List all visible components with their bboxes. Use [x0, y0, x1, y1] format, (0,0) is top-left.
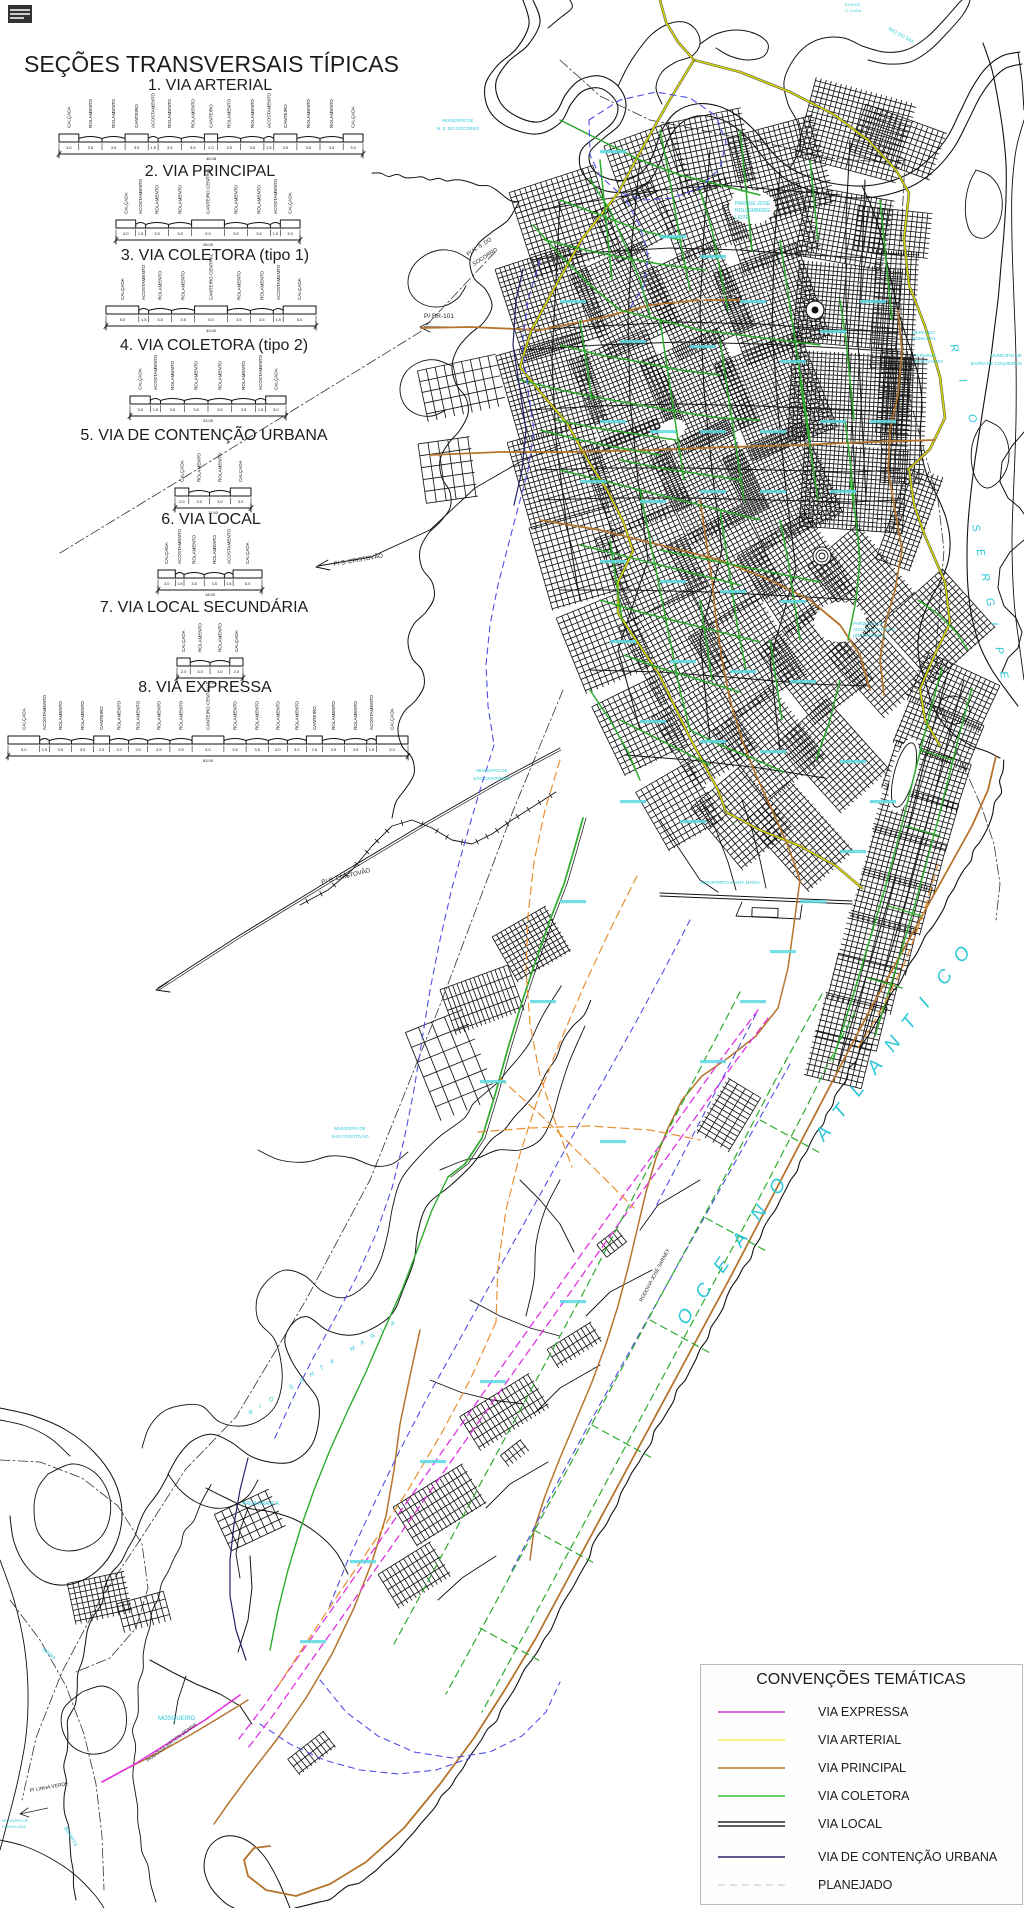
- svg-text:PARQUE GOV.: PARQUE GOV.: [853, 621, 884, 626]
- svg-text:P/ BR-101: P/ BR-101: [424, 313, 454, 320]
- svg-text:3. VIA COLETORA (tipo 1): 3. VIA COLETORA (tipo 1): [121, 247, 309, 264]
- svg-text:3.0: 3.0: [294, 747, 300, 752]
- svg-text:3.5: 3.5: [226, 145, 231, 150]
- svg-text:RODOVIÁRIO: RODOVIÁRIO: [914, 358, 943, 364]
- svg-text:MUNICÍPIO DE: MUNICÍPIO DE: [334, 1125, 365, 1131]
- svg-text:18.00: 18.00: [205, 592, 216, 597]
- svg-text:AREIA BRANCA: AREIA BRANCA: [242, 1501, 280, 1507]
- svg-text:CALÇADA: CALÇADA: [138, 367, 143, 390]
- svg-text:1. VIA ARTERIAL: 1. VIA ARTERIAL: [148, 77, 272, 94]
- svg-text:3.5: 3.5: [134, 145, 139, 150]
- svg-text:ROLAMENTO: ROLAMENTO: [212, 535, 217, 564]
- svg-text:3.0: 3.0: [197, 669, 203, 674]
- svg-text:3.5: 3.5: [283, 145, 288, 150]
- svg-text:ROLAMENTO: ROLAMENTO: [190, 99, 195, 128]
- svg-text:SANTA LUZIA: SANTA LUZIA: [2, 1825, 26, 1829]
- svg-text:3.5: 3.5: [331, 747, 336, 752]
- svg-text:5.0: 5.0: [120, 317, 126, 322]
- svg-text:CALÇADA: CALÇADA: [245, 541, 250, 564]
- svg-text:5.0: 5.0: [245, 581, 251, 586]
- svg-text:ROLAMENTO: ROLAMENTO: [178, 185, 183, 214]
- svg-text:3.5: 3.5: [250, 145, 255, 150]
- svg-text:5.0: 5.0: [297, 317, 303, 322]
- svg-text:3.5: 3.5: [190, 145, 195, 150]
- svg-text:VIA PRINCIPAL: VIA PRINCIPAL: [818, 1761, 906, 1775]
- svg-text:ROLAMENTO: ROLAMENTO: [194, 361, 199, 390]
- svg-text:ROLAMENTO: ROLAMENTO: [198, 623, 203, 652]
- svg-text:3.0: 3.0: [116, 747, 122, 752]
- svg-text:63.00: 63.00: [203, 758, 214, 763]
- svg-text:3.5: 3.5: [329, 145, 334, 150]
- svg-text:ROLAMENTO: ROLAMENTO: [255, 701, 260, 730]
- svg-text:3.5: 3.5: [167, 145, 172, 150]
- svg-text:SÃO CRISTÓVÃO: SÃO CRISTÓVÃO: [473, 775, 511, 781]
- svg-text:ROLAMENTO: ROLAMENTO: [250, 99, 255, 128]
- svg-text:ROLAMENTO: ROLAMENTO: [294, 701, 299, 730]
- svg-text:MUNICIPAL: MUNICIPAL: [912, 336, 937, 341]
- svg-text:CONVENÇÕES TEMÁTICAS: CONVENÇÕES TEMÁTICAS: [756, 1668, 966, 1688]
- svg-text:1.5: 1.5: [150, 145, 155, 150]
- svg-text:5.0: 5.0: [208, 317, 214, 322]
- svg-text:3.5: 3.5: [254, 747, 259, 752]
- svg-text:CALÇADA: CALÇADA: [238, 459, 243, 482]
- svg-text:1.5: 1.5: [226, 581, 231, 586]
- svg-text:CALÇADA: CALÇADA: [390, 707, 395, 730]
- svg-text:CALÇADA: CALÇADA: [234, 629, 239, 652]
- svg-text:ROLAMENTO: ROLAMENTO: [217, 361, 222, 390]
- svg-text:CANTEIRO: CANTEIRO: [312, 706, 317, 730]
- svg-text:ACOSTAMENTO: ACOSTAMENTO: [141, 265, 146, 300]
- svg-text:ROLAMENTO: ROLAMENTO: [58, 701, 63, 730]
- svg-text:ROLAMENTO: ROLAMENTO: [170, 361, 175, 390]
- svg-text:5.0: 5.0: [205, 231, 211, 236]
- svg-text:3.5: 3.5: [178, 747, 183, 752]
- svg-text:ACOSTAMENTO: ACOSTAMENTO: [369, 695, 374, 730]
- svg-text:3.0: 3.0: [196, 499, 202, 504]
- svg-text:5.0: 5.0: [21, 747, 27, 752]
- svg-text:3.0: 3.0: [217, 669, 223, 674]
- svg-text:CALÇADA: CALÇADA: [21, 707, 26, 730]
- svg-text:ROLAMENTO: ROLAMENTO: [88, 99, 93, 128]
- svg-text:3.5: 3.5: [212, 581, 217, 586]
- svg-text:CANTEIRO CENTRAL: CANTEIRO CENTRAL: [206, 167, 211, 214]
- svg-text:2.0: 2.0: [181, 669, 187, 674]
- svg-text:SEÇÕES TRANSVERSAIS TÍPICAS: SEÇÕES TRANSVERSAIS TÍPICAS: [24, 50, 399, 77]
- svg-text:ROLAMENTO: ROLAMENTO: [241, 361, 246, 390]
- svg-text:ROLAMENTO: ROLAMENTO: [167, 99, 172, 128]
- svg-text:PARQUE JOSÉ: PARQUE JOSÉ: [735, 200, 771, 207]
- svg-text:MUNICÍPIO DE: MUNICÍPIO DE: [2, 1819, 29, 1823]
- svg-text:5.0: 5.0: [389, 747, 395, 752]
- svg-text:CALÇADA: CALÇADA: [164, 541, 169, 564]
- svg-text:ROLAMENTO: ROLAMENTO: [306, 99, 311, 128]
- svg-text:ACOSTAMENTO: ACOSTAMENTO: [226, 529, 231, 564]
- svg-text:3.5: 3.5: [306, 145, 311, 150]
- svg-text:MOSQUEIRO: MOSQUEIRO: [158, 1716, 196, 1722]
- svg-text:46.08: 46.08: [206, 156, 217, 161]
- svg-text:3.5: 3.5: [156, 747, 161, 752]
- svg-text:3.5: 3.5: [177, 231, 182, 236]
- svg-text:VIA DE CONTENÇÃO URBANA: VIA DE CONTENÇÃO URBANA: [818, 1850, 998, 1864]
- svg-text:ACOSTAMENTO: ACOSTAMENTO: [138, 179, 143, 214]
- svg-text:CANTEIRO: CANTEIRO: [209, 104, 214, 128]
- svg-text:ROLAMENTO: ROLAMENTO: [217, 453, 222, 482]
- svg-text:23.00: 23.00: [203, 418, 214, 423]
- svg-text:MUNICÍPIO DE: MUNICÍPIO DE: [476, 767, 507, 773]
- svg-text:ROLAMENTO: ROLAMENTO: [179, 701, 184, 730]
- svg-text:3.5: 3.5: [80, 747, 85, 752]
- svg-text:3.5: 3.5: [154, 231, 159, 236]
- svg-text:3.5: 3.5: [180, 317, 185, 322]
- svg-text:MUNICÍPIO DE: MUNICÍPIO DE: [991, 352, 1022, 358]
- svg-text:33.00: 33.00: [206, 328, 217, 333]
- svg-text:SÃO CRISTÓVÃO: SÃO CRISTÓVÃO: [331, 1133, 369, 1139]
- svg-text:AUGUSTO FRANCO: AUGUSTO FRANCO: [853, 627, 896, 632]
- svg-text:LEITE: LEITE: [735, 215, 750, 221]
- svg-text:ROLAMENTO: ROLAMENTO: [353, 701, 358, 730]
- svg-text:3.5: 3.5: [233, 231, 238, 236]
- svg-text:ACOSTAMENTO: ACOSTAMENTO: [177, 529, 182, 564]
- svg-text:ROLAMENTO: ROLAMENTO: [259, 271, 264, 300]
- svg-text:MERCADO: MERCADO: [912, 330, 936, 335]
- svg-text:BARRA DE COQUEIROS: BARRA DE COQUEIROS: [970, 361, 1022, 366]
- svg-text:3.0: 3.0: [238, 499, 244, 504]
- svg-text:3.0: 3.0: [123, 231, 129, 236]
- svg-text:1.5: 1.5: [141, 317, 146, 322]
- svg-text:3.5: 3.5: [157, 317, 162, 322]
- svg-text:1.5: 1.5: [258, 407, 263, 412]
- svg-text:VIA COLETORA: VIA COLETORA: [818, 1789, 910, 1803]
- svg-text:ROLAMENTO: ROLAMENTO: [80, 701, 85, 730]
- svg-text:VIA EXPRESSA: VIA EXPRESSA: [818, 1705, 909, 1719]
- svg-text:3.5: 3.5: [58, 747, 63, 752]
- svg-text:CANTEIRO: CANTEIRO: [283, 104, 288, 128]
- svg-text:PLANEJADO: PLANEJADO: [818, 1878, 893, 1892]
- svg-text:4. VIA COLETORA (tipo 2): 4. VIA COLETORA (tipo 2): [120, 337, 308, 354]
- svg-text:CALÇADA: CALÇADA: [297, 277, 302, 300]
- svg-text:3.5: 3.5: [111, 145, 116, 150]
- svg-text:3.5: 3.5: [259, 317, 264, 322]
- svg-text:ROLAMENTO: ROLAMENTO: [136, 701, 141, 730]
- svg-text:ROLAMENTO: ROLAMENTO: [233, 185, 238, 214]
- svg-text:CALÇADA: CALÇADA: [179, 459, 184, 482]
- svg-text:3.0: 3.0: [66, 145, 72, 150]
- svg-text:CANTEIRO: CANTEIRO: [134, 104, 139, 128]
- svg-text:3.5: 3.5: [241, 407, 246, 412]
- svg-text:ROLAMENTO: ROLAMENTO: [256, 185, 261, 214]
- svg-text:2.5: 2.5: [99, 747, 104, 752]
- svg-text:ACOSTAMENTO: ACOSTAMENTO: [273, 179, 278, 214]
- svg-text:3.5: 3.5: [191, 581, 196, 586]
- svg-text:1.5: 1.5: [276, 317, 281, 322]
- svg-text:1.5: 1.5: [138, 231, 143, 236]
- svg-text:ROLAMENTO: ROLAMENTO: [158, 271, 163, 300]
- svg-text:ROLAMENTO: ROLAMENTO: [232, 701, 237, 730]
- svg-text:CANTEIRO CENTRAL: CANTEIRO CENTRAL: [209, 253, 214, 300]
- svg-text:2.0: 2.0: [234, 669, 240, 674]
- svg-text:CANTEIRO CENTRAL: CANTEIRO CENTRAL: [206, 683, 211, 730]
- svg-text:VIA ARTERIAL: VIA ARTERIAL: [818, 1733, 901, 1747]
- svg-text:1.5: 1.5: [153, 407, 158, 412]
- svg-text:ROLAMENTO: ROLAMENTO: [155, 185, 160, 214]
- svg-text:TERMINAL: TERMINAL: [914, 353, 937, 358]
- svg-text:3.5: 3.5: [193, 407, 198, 412]
- svg-text:3.5: 3.5: [217, 407, 222, 412]
- svg-text:ROLLEMBERG: ROLLEMBERG: [735, 208, 770, 214]
- svg-text:3.0: 3.0: [135, 747, 141, 752]
- svg-text:5.0: 5.0: [205, 747, 211, 752]
- svg-text:3.0: 3.0: [273, 407, 279, 412]
- svg-text:S. LUZIA: S. LUZIA: [845, 8, 862, 13]
- svg-text:ROLAMENTO: ROLAMENTO: [275, 701, 280, 730]
- svg-text:CALÇADA: CALÇADA: [120, 277, 125, 300]
- svg-text:CALÇADA: CALÇADA: [66, 105, 71, 128]
- svg-text:ILHA DE: ILHA DE: [845, 2, 861, 7]
- svg-text:5. VIA DE CONTENÇÃO URBANA: 5. VIA DE CONTENÇÃO URBANA: [80, 424, 327, 444]
- svg-text:AEROPORTO SANTA MARIA: AEROPORTO SANTA MARIA: [700, 880, 760, 885]
- svg-text:2.0: 2.0: [208, 145, 214, 150]
- svg-text:3.5: 3.5: [170, 407, 175, 412]
- svg-text:ROLAMENTO: ROLAMENTO: [192, 535, 197, 564]
- svg-text:3.5: 3.5: [88, 145, 93, 150]
- svg-text:ACOSTAMENTO: ACOSTAMENTO: [42, 695, 47, 730]
- svg-text:ROLAMENTO: ROLAMENTO: [227, 99, 232, 128]
- svg-text:3.0: 3.0: [350, 145, 356, 150]
- svg-text:ROLAMENTO: ROLAMENTO: [197, 453, 202, 482]
- svg-text:MUNICÍPIO DE: MUNICÍPIO DE: [442, 117, 473, 123]
- svg-text:1.5: 1.5: [369, 747, 374, 752]
- svg-text:ROLAMENTO: ROLAMENTO: [181, 271, 186, 300]
- svg-text:ROLAMENTO: ROLAMENTO: [331, 701, 336, 730]
- svg-text:(SEMENTEIRA): (SEMENTEIRA): [853, 633, 886, 638]
- svg-text:ACOSTAMENTO: ACOSTAMENTO: [276, 265, 281, 300]
- svg-text:3.0: 3.0: [287, 231, 293, 236]
- svg-text:3.0: 3.0: [164, 581, 170, 586]
- svg-text:6. VIA LOCAL: 6. VIA LOCAL: [161, 511, 261, 528]
- svg-text:ROLAMENTO: ROLAMENTO: [156, 701, 161, 730]
- svg-text:3.5: 3.5: [232, 747, 237, 752]
- svg-text:ROLAMENTO: ROLAMENTO: [111, 99, 116, 128]
- svg-text:2.0: 2.0: [179, 499, 185, 504]
- svg-text:CALÇADA: CALÇADA: [351, 105, 356, 128]
- svg-text:CALÇADA: CALÇADA: [123, 191, 128, 214]
- svg-text:2.5: 2.5: [312, 747, 317, 752]
- svg-text:ROLAMENTO: ROLAMENTO: [329, 99, 334, 128]
- svg-text:3.0: 3.0: [137, 407, 143, 412]
- svg-text:3.5: 3.5: [256, 231, 261, 236]
- svg-text:CALÇADA: CALÇADA: [273, 367, 278, 390]
- svg-text:ROLAMENTO: ROLAMENTO: [236, 271, 241, 300]
- svg-text:VIA LOCAL: VIA LOCAL: [818, 1817, 882, 1831]
- svg-text:3.5: 3.5: [353, 747, 358, 752]
- svg-text:1.5: 1.5: [273, 231, 278, 236]
- svg-text:CALÇADA: CALÇADA: [288, 191, 293, 214]
- svg-text:ACOSTAMENTO: ACOSTAMENTO: [258, 355, 263, 390]
- svg-text:1.5: 1.5: [42, 747, 47, 752]
- svg-text:3.0: 3.0: [275, 747, 281, 752]
- svg-text:3.5: 3.5: [236, 317, 241, 322]
- svg-text:CANTEIRO: CANTEIRO: [99, 706, 104, 730]
- svg-text:ACOSTAMENTO: ACOSTAMENTO: [151, 93, 156, 128]
- svg-text:N. S. DO SOCORRO: N. S. DO SOCORRO: [437, 126, 480, 131]
- svg-text:3.0: 3.0: [217, 499, 223, 504]
- svg-text:ACOSTAMENTO: ACOSTAMENTO: [153, 355, 158, 390]
- svg-text:CALÇADA: CALÇADA: [181, 629, 186, 652]
- svg-text:1.5: 1.5: [177, 581, 182, 586]
- svg-text:ROLAMENTO: ROLAMENTO: [117, 701, 122, 730]
- svg-text:1.5: 1.5: [266, 145, 271, 150]
- svg-text:ACOSTAMENTO: ACOSTAMENTO: [266, 93, 271, 128]
- svg-text:7. VIA LOCAL SECUNDÁRIA: 7. VIA LOCAL SECUNDÁRIA: [100, 597, 309, 616]
- svg-text:ROLAMENTO: ROLAMENTO: [217, 623, 222, 652]
